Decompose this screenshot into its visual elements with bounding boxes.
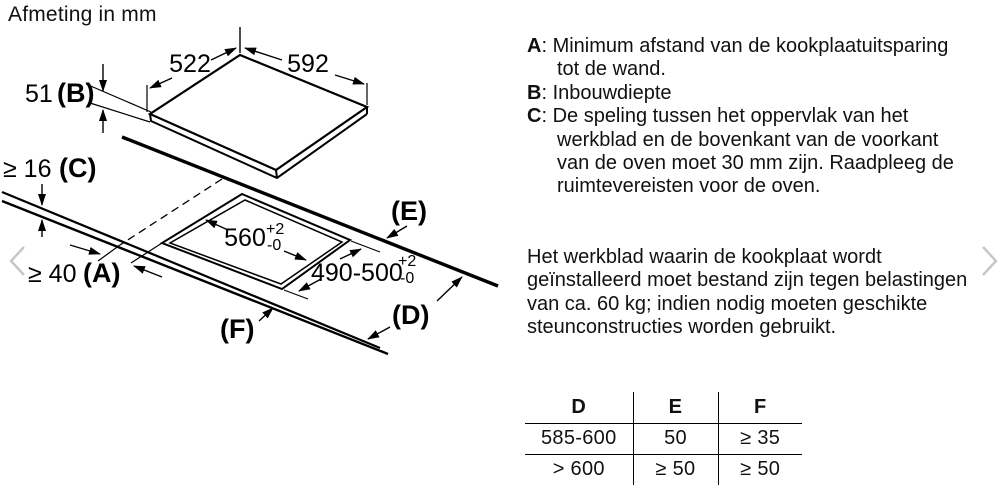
legend-text-a: : Minimum afstand van de kookplaatuitspa… bbox=[541, 35, 948, 80]
table-row: 585-600 50 ≥ 35 bbox=[525, 423, 802, 454]
legend-item-b: B: Inbouwdiepte bbox=[527, 82, 963, 105]
carousel-prev-icon[interactable] bbox=[11, 247, 24, 275]
legend-item-a: A: Minimum afstand van de kookplaatuitsp… bbox=[527, 35, 963, 82]
cell-e-1: 50 bbox=[633, 423, 718, 454]
hob-edge-profile bbox=[150, 107, 367, 178]
dim-490-500-tol-minus: -0 bbox=[400, 270, 414, 287]
svg-text:(F): (F) bbox=[220, 314, 254, 344]
legend-list: A: Minimum afstand van de kookplaatuitsp… bbox=[527, 35, 963, 199]
dim-490-500-tol-plus: +2 bbox=[398, 253, 416, 270]
dim-490-500-value: 490-500 bbox=[311, 259, 403, 287]
cell-e-2: ≥ 50 bbox=[633, 454, 718, 485]
legend-item-c: C: De speling tussen het oppervlak van h… bbox=[527, 105, 963, 199]
page-title: Afmeting in mm bbox=[8, 3, 157, 27]
legend-text-b: : Inbouwdiepte bbox=[541, 82, 671, 104]
dim-522: 522 bbox=[147, 48, 236, 112]
cell-d-2: > 600 bbox=[525, 454, 633, 485]
cell-f-2: ≥ 50 bbox=[718, 454, 802, 485]
side-wall-hidden-line bbox=[120, 179, 222, 245]
legend-text-c: : De speling tussen het oppervlak van he… bbox=[541, 105, 953, 197]
dim-592: 592 bbox=[245, 48, 367, 105]
dim-40-key: (A) bbox=[83, 258, 120, 288]
col-header-d: D bbox=[525, 392, 633, 423]
dim-490-500: 490-500 +2 -0 bbox=[284, 241, 416, 299]
ref-label-e: (E) bbox=[387, 196, 427, 238]
legend-key-c: C bbox=[527, 105, 541, 127]
dim-560-value: 560 bbox=[224, 224, 266, 252]
legend-key-a: A bbox=[527, 35, 541, 57]
svg-text:(E): (E) bbox=[391, 196, 427, 226]
dim-51-key: (B) bbox=[57, 78, 94, 108]
dim-16-value: ≥ 16 bbox=[3, 155, 51, 183]
dim-592-label: 592 bbox=[287, 50, 329, 78]
table-row: > 600 ≥ 50 ≥ 50 bbox=[525, 454, 802, 485]
svg-text:(D): (D) bbox=[392, 300, 429, 330]
dim-560-tol-minus: -0 bbox=[267, 237, 281, 254]
dim-560-tol-plus: +2 bbox=[266, 221, 284, 238]
ref-label-f: (F) bbox=[220, 308, 273, 344]
dim-40-value: ≥ 40 bbox=[28, 260, 76, 288]
col-header-e: E bbox=[633, 392, 718, 423]
table-header-row: D E F bbox=[525, 392, 802, 423]
product-dimension-sheet: 522 592 51 (B) ≥ 16 (C) bbox=[0, 0, 1000, 501]
col-header-f: F bbox=[718, 392, 802, 423]
clearance-table: D E F 585-600 50 ≥ 35 > 600 ≥ 50 ≥ 50 bbox=[525, 392, 802, 485]
dim-51-b: 51 (B) bbox=[25, 64, 151, 133]
dim-560: 560 +2 -0 bbox=[206, 220, 306, 260]
dim-16-key: (C) bbox=[59, 153, 96, 183]
cell-f-1: ≥ 35 bbox=[718, 423, 802, 454]
cell-d-1: 585-600 bbox=[525, 423, 633, 454]
legend-key-b: B bbox=[527, 82, 541, 104]
dim-522-label: 522 bbox=[169, 50, 211, 78]
dim-51-value: 51 bbox=[25, 80, 53, 108]
load-capacity-note: Het werkblad waarin de kookplaat wordt g… bbox=[527, 246, 997, 340]
